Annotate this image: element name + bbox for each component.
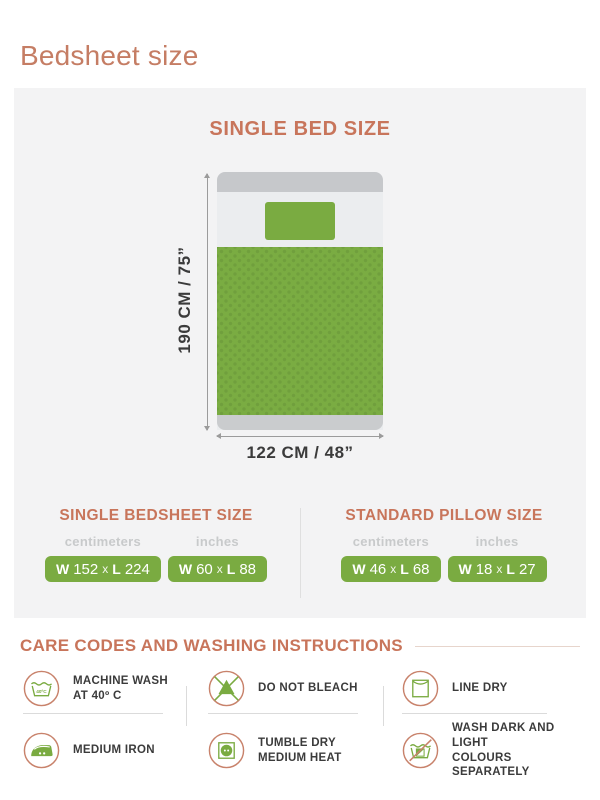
- bed-diagram: [217, 172, 383, 430]
- width-letter: W: [459, 561, 472, 577]
- height-dimension-line: [207, 174, 208, 430]
- bed-width-label: 122 CM / 48”: [200, 443, 400, 463]
- length-value: 68: [413, 561, 430, 578]
- length-value: 27: [519, 561, 536, 578]
- care-item-line-dry: LINE DRY: [395, 664, 580, 713]
- width-letter: W: [56, 561, 69, 577]
- times-symbol: x: [102, 562, 108, 576]
- times-symbol: x: [217, 562, 223, 576]
- times-symbol: x: [390, 562, 396, 576]
- length-letter: L: [506, 561, 515, 577]
- do-not-bleach-icon: [208, 670, 245, 707]
- bedsheet-size-block: SINGLE BEDSHEET SIZE centimeters W 152 x…: [16, 507, 296, 582]
- care-item-wash-separately: WASH DARK AND LIGHT COLOURS SEPARATELY: [395, 713, 580, 775]
- length-value: 224: [125, 561, 150, 578]
- times-symbol: x: [496, 562, 502, 576]
- care-item-medium-iron: MEDIUM IRON: [23, 713, 208, 775]
- care-codes-grid: 40ºC MACHINE WASH AT 40º C MEDIUM IRON: [23, 664, 580, 775]
- bed-pillow: [265, 202, 335, 240]
- bed-size-heading: SINGLE BED SIZE: [0, 118, 600, 141]
- length-value: 88: [239, 561, 256, 578]
- width-value: 152: [73, 561, 98, 578]
- care-heading: CARE CODES AND WASHING INSTRUCTIONS: [20, 636, 403, 656]
- pillow-size-heading: STANDARD PILLOW SIZE: [304, 507, 584, 525]
- arrow-up-icon: [204, 173, 210, 178]
- pillow-inch-badge: W 18 x L 27: [448, 556, 547, 582]
- arrow-left-icon: [216, 433, 221, 439]
- line-dry-icon: [402, 670, 439, 707]
- bed-footboard: [217, 415, 383, 430]
- column-divider: [383, 686, 384, 726]
- care-label: LINE DRY: [452, 681, 508, 696]
- length-letter: L: [227, 561, 236, 577]
- bed-height-label: 190 CM / 75”: [175, 220, 197, 380]
- wash-separately-icon: [402, 732, 439, 769]
- size-sections-divider: [300, 508, 301, 598]
- care-heading-rule: [415, 646, 580, 647]
- bedsheet-inch-badge: W 60 x L 88: [168, 556, 267, 582]
- unit-label-centimeters: centimeters: [65, 534, 141, 549]
- arrow-down-icon: [204, 426, 210, 431]
- width-value: 60: [196, 561, 213, 578]
- care-label: DO NOT BLEACH: [258, 681, 358, 696]
- care-label: MEDIUM IRON: [73, 743, 155, 758]
- width-value: 46: [370, 561, 387, 578]
- care-label: WASH DARK AND LIGHT COLOURS SEPARATELY: [452, 721, 580, 781]
- column-divider: [186, 686, 187, 726]
- arrow-right-icon: [379, 433, 384, 439]
- width-letter: W: [179, 561, 192, 577]
- bed-headboard: [217, 172, 383, 192]
- length-letter: L: [400, 561, 409, 577]
- page-title: Bedsheet size: [20, 40, 199, 72]
- care-label: TUMBLE DRY MEDIUM HEAT: [258, 736, 342, 766]
- svg-text:40ºC: 40ºC: [36, 689, 47, 695]
- medium-iron-icon: [23, 732, 60, 769]
- pillow-size-block: STANDARD PILLOW SIZE centimeters W 46 x …: [304, 507, 584, 582]
- machine-wash-icon: 40ºC: [23, 670, 60, 707]
- care-heading-row: CARE CODES AND WASHING INSTRUCTIONS: [20, 636, 580, 656]
- bedsheet-size-infographic: Bedsheet size SINGLE BED SIZE 190 CM / 7…: [0, 0, 600, 800]
- pillow-cm-badge: W 46 x L 68: [341, 556, 440, 582]
- care-item-machine-wash: 40ºC MACHINE WASH AT 40º C: [23, 664, 208, 713]
- bedsheet-size-heading: SINGLE BEDSHEET SIZE: [16, 507, 296, 525]
- care-label: MACHINE WASH AT 40º C: [73, 674, 168, 704]
- care-item-tumble-dry: TUMBLE DRY MEDIUM HEAT: [208, 713, 395, 775]
- unit-label-inches: inches: [476, 534, 519, 549]
- unit-label-centimeters: centimeters: [353, 534, 429, 549]
- bedsheet-cm-badge: W 152 x L 224: [45, 556, 161, 582]
- width-letter: W: [352, 561, 365, 577]
- care-item-do-not-bleach: DO NOT BLEACH: [208, 664, 395, 713]
- length-letter: L: [112, 561, 121, 577]
- unit-label-inches: inches: [196, 534, 239, 549]
- width-value: 18: [476, 561, 493, 578]
- width-dimension-line: [217, 436, 383, 437]
- tumble-dry-icon: [208, 732, 245, 769]
- bed-sheet: [217, 247, 383, 415]
